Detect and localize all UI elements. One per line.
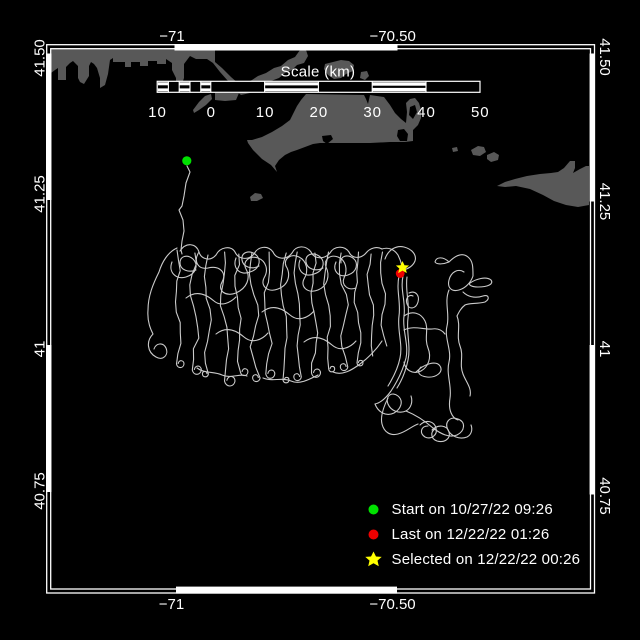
svg-text:40.75: 40.75	[596, 477, 613, 515]
svg-text:20: 20	[310, 104, 329, 121]
svg-text:−71: −71	[159, 596, 184, 613]
svg-text:Selected on 12/22/22 00:26: Selected on 12/22/22 00:26	[392, 551, 581, 568]
svg-text:30: 30	[363, 104, 382, 121]
svg-text:40: 40	[417, 104, 436, 121]
svg-text:50: 50	[471, 104, 490, 121]
svg-text:−71: −71	[159, 28, 184, 45]
svg-text:41.50: 41.50	[596, 38, 613, 76]
svg-text:40.75: 40.75	[32, 472, 49, 510]
svg-text:41: 41	[596, 341, 613, 358]
svg-text:−70.50: −70.50	[370, 28, 416, 45]
svg-text:0: 0	[207, 104, 216, 121]
svg-text:10: 10	[256, 104, 275, 121]
svg-text:Last on 12/22/22 01:26: Last on 12/22/22 01:26	[392, 526, 550, 543]
svg-text:Start on 10/27/22 09:26: Start on 10/27/22 09:26	[392, 501, 553, 518]
svg-text:41: 41	[32, 341, 49, 358]
svg-text:41.50: 41.50	[32, 39, 49, 77]
svg-text:41.25: 41.25	[596, 183, 613, 221]
svg-text:41.25: 41.25	[32, 175, 49, 213]
svg-text:Scale (km): Scale (km)	[281, 64, 356, 81]
svg-text:10: 10	[148, 104, 167, 121]
svg-text:−70.50: −70.50	[369, 596, 415, 613]
